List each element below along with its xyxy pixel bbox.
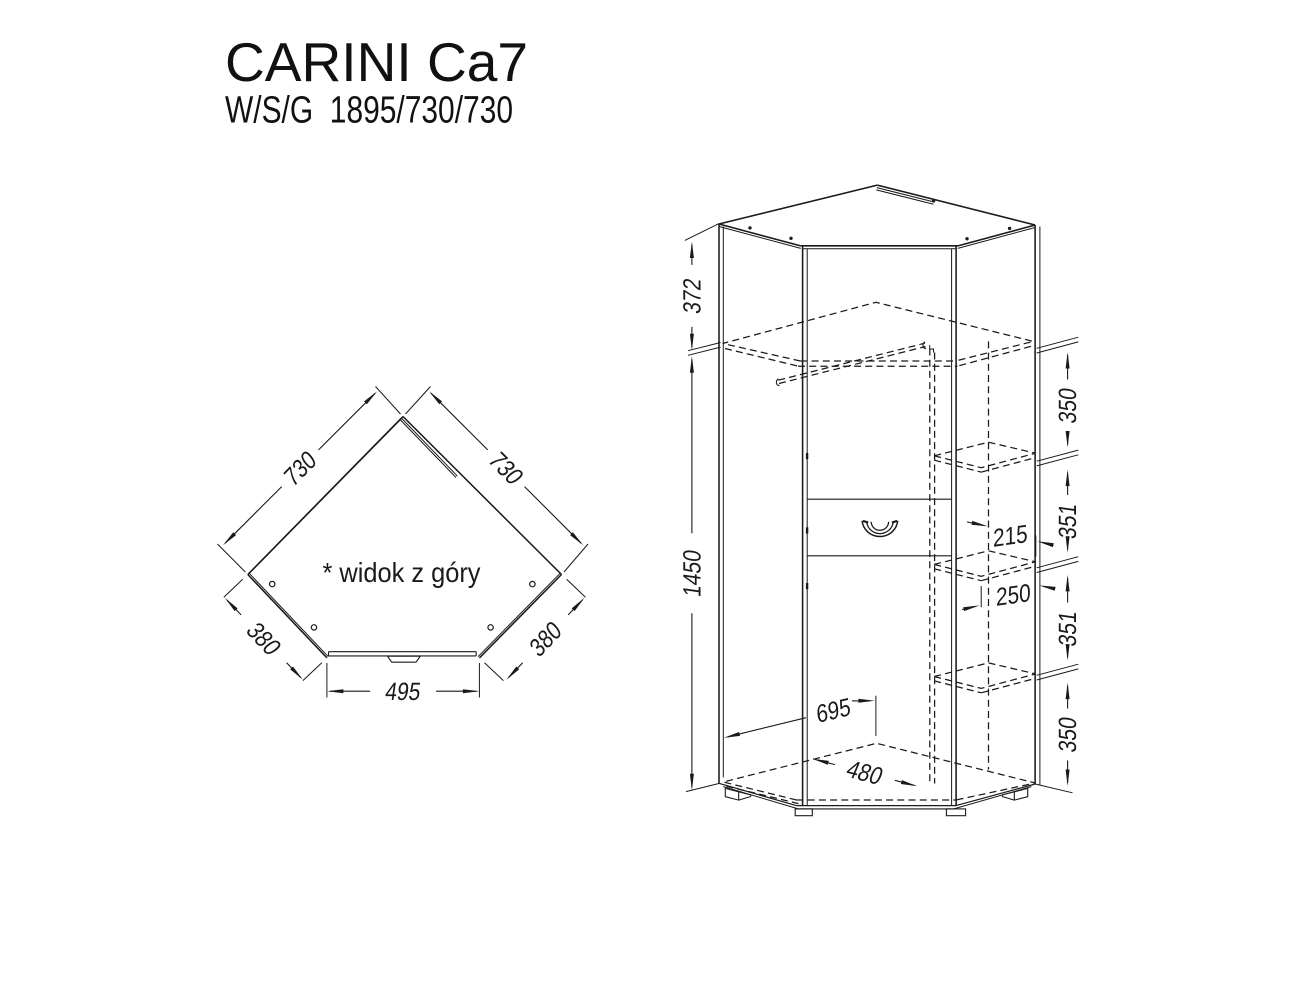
svg-text:350: 350 <box>1054 386 1082 425</box>
svg-text:250: 250 <box>996 578 1031 611</box>
svg-text:1450: 1450 <box>678 548 706 599</box>
svg-text:372: 372 <box>678 276 706 315</box>
svg-text:350: 350 <box>1054 715 1082 754</box>
svg-text:215: 215 <box>993 519 1028 552</box>
svg-text:W/S/G 1895/730/730: W/S/G 1895/730/730 <box>225 90 513 132</box>
svg-text:495: 495 <box>384 677 423 705</box>
svg-text:* widok z góry: * widok z góry <box>323 557 481 588</box>
svg-text:351: 351 <box>1054 502 1082 541</box>
svg-text:351: 351 <box>1054 609 1082 648</box>
svg-text:CARINI Ca7: CARINI Ca7 <box>225 31 528 93</box>
